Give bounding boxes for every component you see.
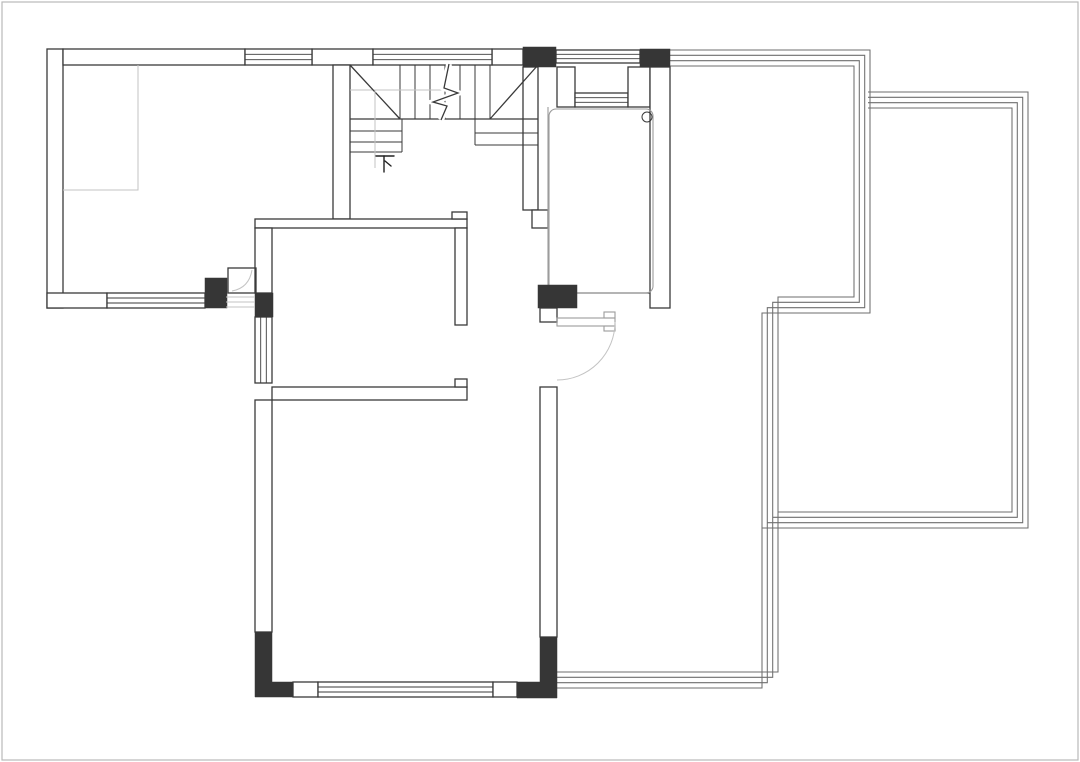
window-band <box>556 50 640 63</box>
center-room-walls <box>255 212 467 400</box>
bathroom-niche-jamb-right <box>628 67 650 107</box>
stairwell <box>333 64 548 228</box>
bathroom <box>548 50 670 308</box>
wall-end-tab <box>455 379 467 387</box>
column <box>523 47 556 67</box>
column-L <box>255 632 293 697</box>
door-latch <box>604 312 615 318</box>
floor-plan-drawing <box>0 0 1080 762</box>
bathroom-niche-jamb-left <box>557 67 575 107</box>
stair-east-wall-jog <box>532 210 548 228</box>
hall-entry-door <box>557 312 615 380</box>
wall-top-exterior <box>63 49 245 65</box>
center-room-east-wall <box>455 228 467 325</box>
column <box>255 293 273 317</box>
column <box>205 278 227 308</box>
window-band <box>255 317 272 383</box>
bottom-room-walls <box>255 308 557 697</box>
terrace-railing-left <box>555 50 870 688</box>
door-swing-arc <box>232 270 252 291</box>
window-band <box>107 293 205 308</box>
center-room-south-wall <box>272 387 467 400</box>
wall-top-pier <box>312 49 373 65</box>
wall-pier <box>493 682 517 697</box>
floor-plan-canvas: 下 <box>0 0 1080 762</box>
wall-end-tab <box>452 212 467 219</box>
wall-bottom <box>47 293 107 308</box>
structural-columns <box>205 47 670 698</box>
column <box>640 49 670 67</box>
window-band <box>318 682 493 697</box>
closet-outline <box>63 65 138 190</box>
window-band <box>373 49 492 65</box>
small-closet-door <box>226 268 256 307</box>
window-band <box>575 93 628 107</box>
bottom-room-west-wall <box>255 400 272 632</box>
bathroom-inner-liner <box>549 109 653 293</box>
column <box>538 285 577 308</box>
stairs-down-label <box>376 156 394 172</box>
stair-east-wall <box>523 67 538 210</box>
stair-lower-steps-left <box>350 119 402 152</box>
center-room-top-wall <box>255 219 467 228</box>
wall-left-exterior <box>47 49 63 308</box>
column-L <box>517 637 557 698</box>
door-latch <box>604 326 615 331</box>
door-pier <box>540 308 557 322</box>
wall-pier <box>293 682 318 697</box>
door-leaf <box>557 318 615 326</box>
wall-top-pier <box>492 49 523 65</box>
terrace-railing-right <box>762 92 1028 528</box>
window-band <box>245 49 312 65</box>
stair-west-wall <box>333 65 350 219</box>
bottom-room-east-wall <box>540 387 557 637</box>
center-room-west-wall <box>255 228 272 293</box>
